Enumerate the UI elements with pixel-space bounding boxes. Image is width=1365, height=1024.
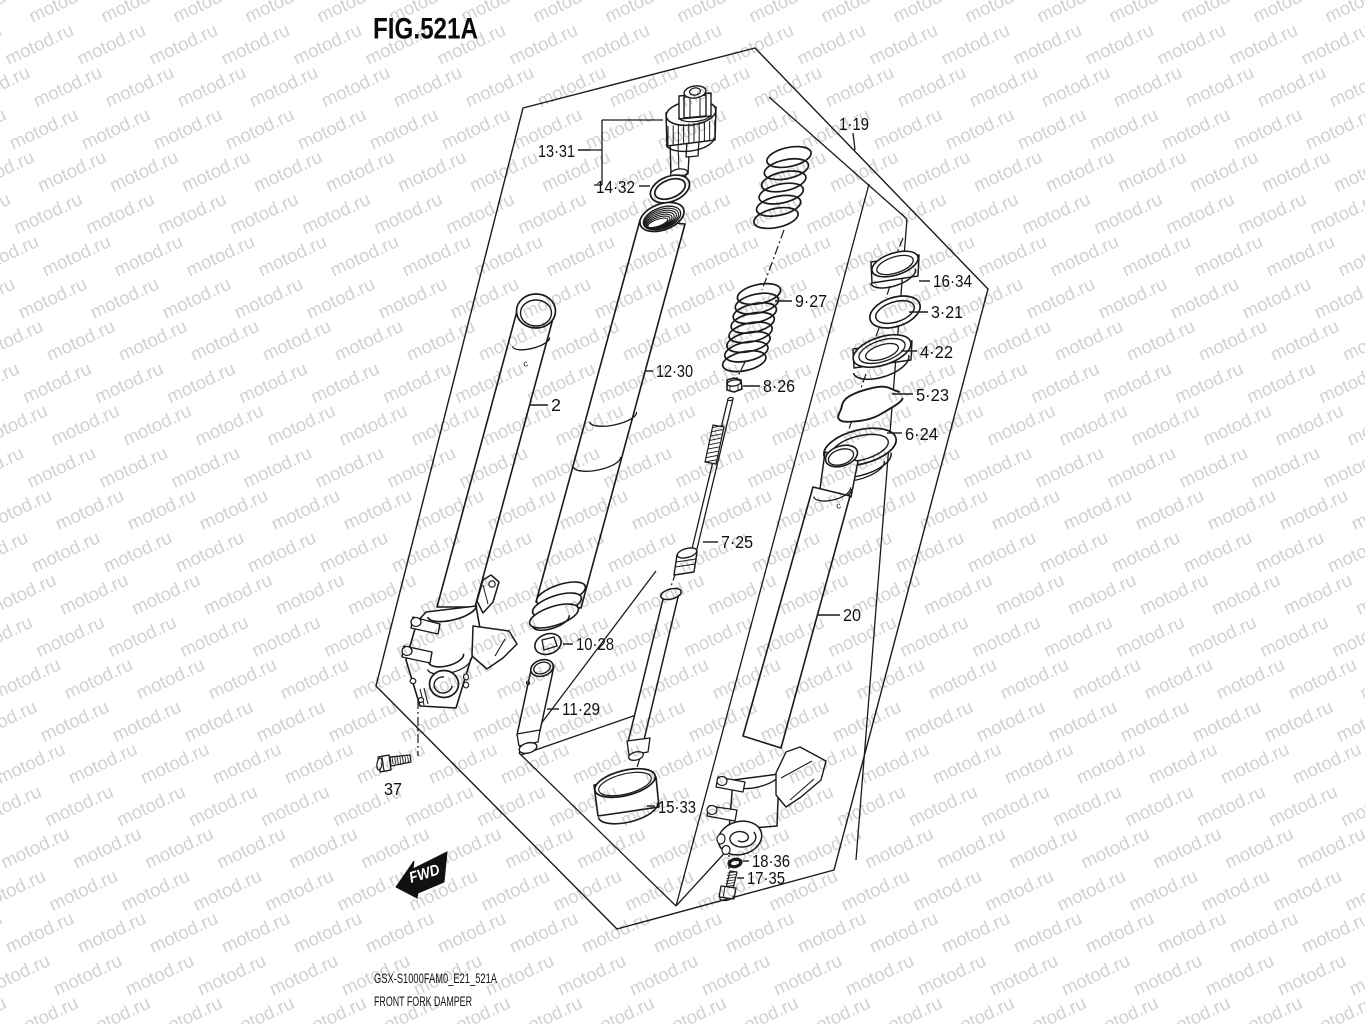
svg-text:13·31: 13·31 — [538, 141, 575, 161]
svg-text:2: 2 — [551, 395, 561, 415]
